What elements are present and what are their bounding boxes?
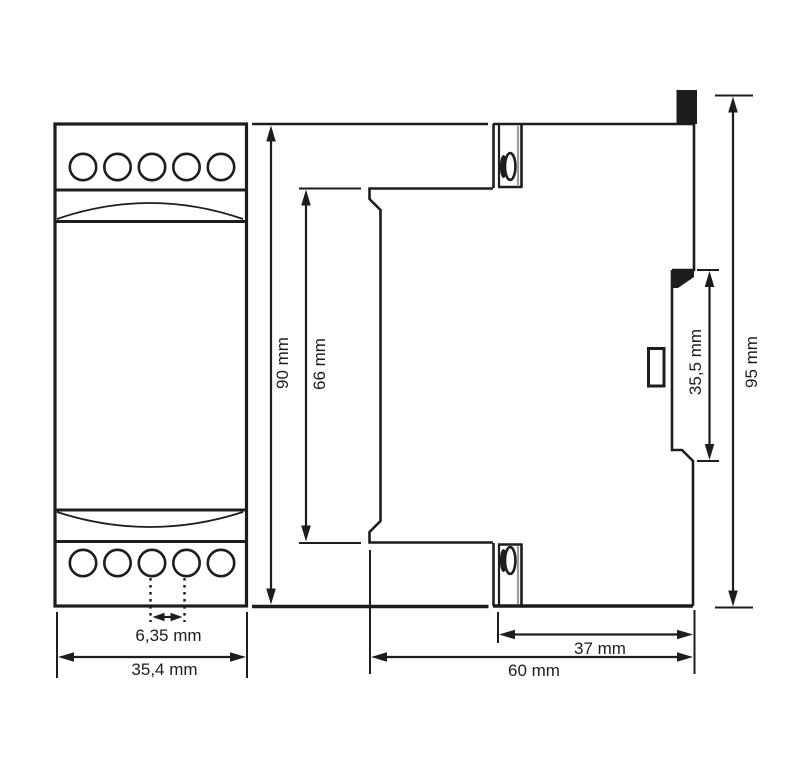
dim-label-total-depth: 60 mm <box>508 661 560 680</box>
technical-drawing: 90 mm 66 mm 35,5 mm 95 mm 6,35 mm 35,4 m… <box>0 0 789 771</box>
arrowhead-left <box>499 630 515 640</box>
terminal-screw-circle <box>139 550 165 576</box>
front-top-window-arc <box>57 203 243 219</box>
side-bottom-terminal-block <box>498 544 523 606</box>
side-top-back-outline <box>493 124 694 270</box>
side-screw-head <box>505 547 515 574</box>
arrowhead-down <box>266 589 276 605</box>
front-view-outline <box>55 124 247 606</box>
arrowhead-right <box>677 652 693 662</box>
arrowhead-up <box>705 271 715 287</box>
terminal-screw-circle <box>173 154 199 180</box>
dim-label-rear-depth: 37 mm <box>574 639 626 658</box>
dim-label-total-height: 95 mm <box>742 336 761 388</box>
dimension-drawing-svg: 90 mm 66 mm 35,5 mm 95 mm 6,35 mm 35,4 m… <box>0 0 789 771</box>
terminal-screw-circle <box>173 550 199 576</box>
dim-label-rail-recess: 35,5 mm <box>686 329 705 395</box>
arrowhead-right <box>230 652 246 662</box>
arrowhead-right <box>677 630 693 640</box>
side-rail-recess-outline <box>672 270 693 606</box>
arrowhead-up <box>301 190 311 206</box>
front-bottom-window-arc <box>57 512 243 527</box>
arrowhead-right <box>171 613 183 621</box>
terminal-screw-circle <box>70 550 96 576</box>
front-bottom-terminal-row <box>70 550 234 576</box>
terminal-screw-circle <box>104 550 130 576</box>
front-top-terminal-row <box>70 154 234 180</box>
dim-label-front-width: 35,4 mm <box>131 660 197 679</box>
terminal-screw-circle <box>139 154 165 180</box>
side-screw-head <box>505 153 515 180</box>
din-top-hook <box>672 270 694 288</box>
terminal-screw-circle <box>208 154 234 180</box>
dim-6-35mm <box>151 578 185 622</box>
dim-66mm <box>299 189 361 544</box>
arrowhead-down <box>728 591 738 607</box>
arrowhead-down <box>705 444 715 460</box>
dim-label-terminal-pitch: 6,35 mm <box>135 626 201 645</box>
side-front-body-outline <box>370 189 494 543</box>
arrowhead-left <box>371 652 387 662</box>
dim-label-body-height: 66 mm <box>310 338 329 390</box>
arrowhead-left <box>58 652 74 662</box>
side-view <box>370 90 698 606</box>
front-view <box>55 124 247 606</box>
arrowhead-down <box>301 526 311 542</box>
terminal-screw-circle <box>208 550 234 576</box>
dim-60mm <box>370 550 693 674</box>
dim-label-front-height: 90 mm <box>273 337 292 389</box>
arrowhead-up <box>728 97 738 113</box>
din-slider-latch <box>649 349 665 387</box>
side-top-terminal-block <box>498 124 523 187</box>
arrowhead-up <box>266 126 276 142</box>
arrowhead-left <box>153 613 165 621</box>
terminal-screw-circle <box>70 154 96 180</box>
dimension-labels: 90 mm 66 mm 35,5 mm 95 mm 6,35 mm 35,4 m… <box>131 329 761 680</box>
terminal-screw-circle <box>104 154 130 180</box>
din-release-clip <box>677 90 698 124</box>
